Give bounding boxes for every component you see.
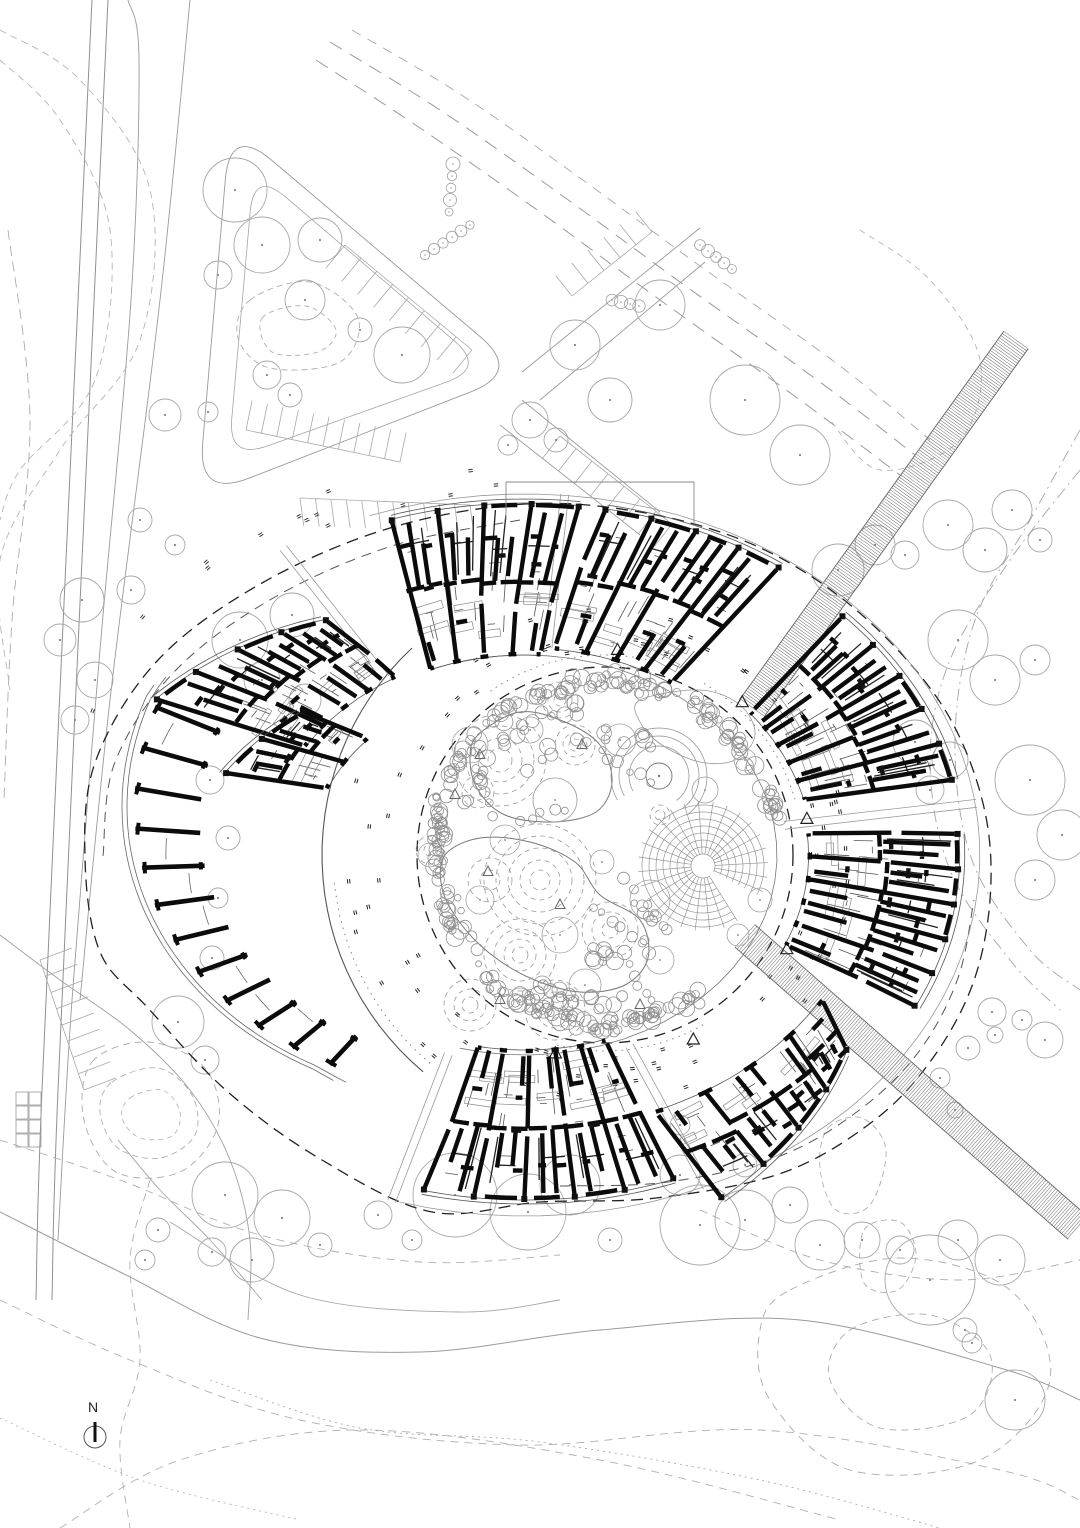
svg-text:N: N bbox=[88, 1399, 98, 1415]
